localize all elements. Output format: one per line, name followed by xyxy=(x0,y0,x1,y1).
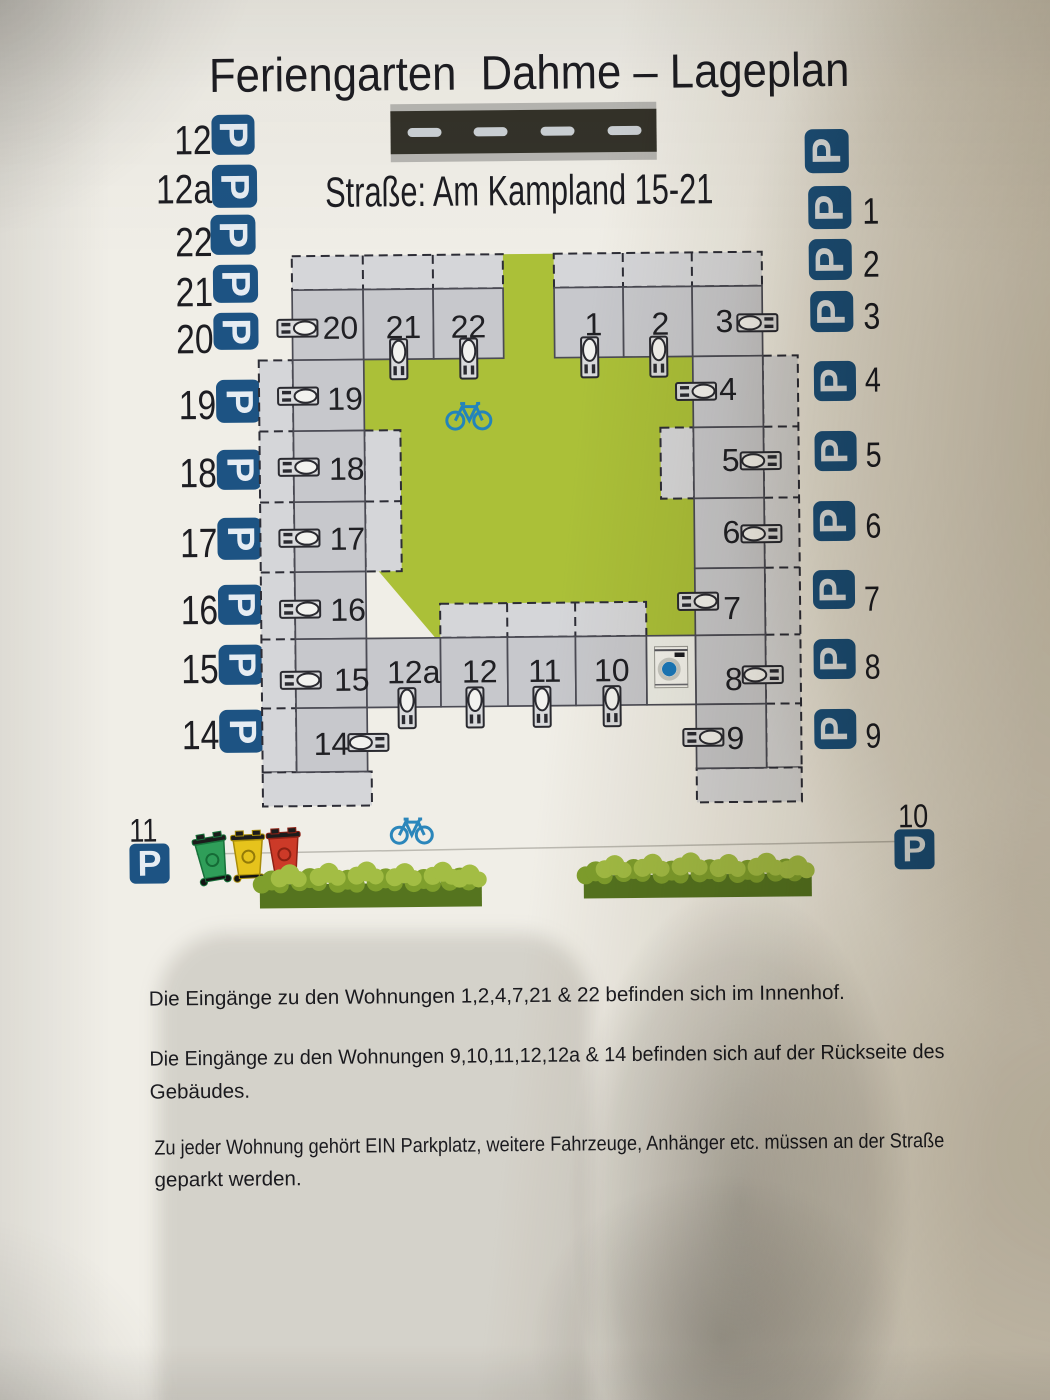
svg-text:15: 15 xyxy=(334,661,370,697)
svg-text:10: 10 xyxy=(594,652,630,688)
svg-text:3: 3 xyxy=(715,303,733,339)
svg-text:11: 11 xyxy=(528,653,562,689)
svg-text:6: 6 xyxy=(722,514,740,550)
svg-text:19: 19 xyxy=(327,381,363,417)
svg-text:7: 7 xyxy=(723,590,741,626)
svg-text:17: 17 xyxy=(329,521,365,557)
svg-text:12a: 12a xyxy=(387,654,441,691)
svg-text:8: 8 xyxy=(725,661,743,697)
svg-text:5: 5 xyxy=(722,442,740,478)
svg-text:14: 14 xyxy=(313,726,349,762)
svg-text:9: 9 xyxy=(726,720,744,756)
svg-text:16: 16 xyxy=(330,592,366,628)
svg-text:18: 18 xyxy=(329,451,365,487)
svg-text:12: 12 xyxy=(462,653,498,689)
svg-text:4: 4 xyxy=(719,371,737,407)
svg-text:20: 20 xyxy=(322,310,358,346)
